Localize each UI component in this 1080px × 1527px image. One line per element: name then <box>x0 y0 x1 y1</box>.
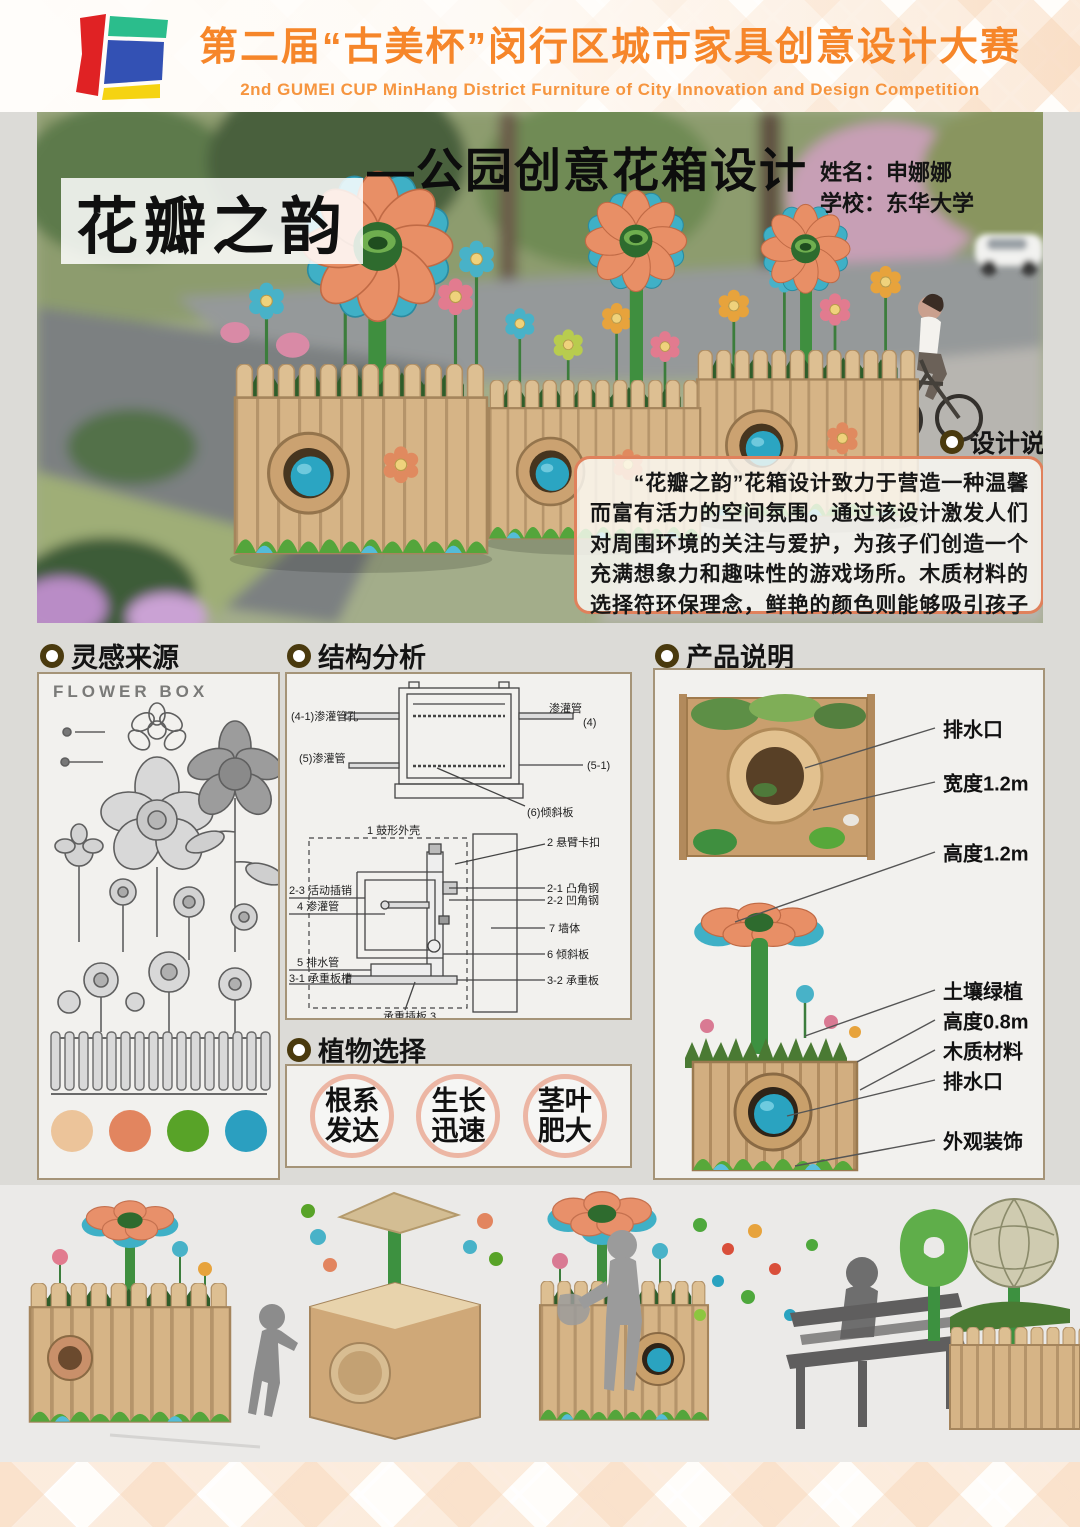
bullet-ring-icon <box>655 644 679 668</box>
project-title: 花瓣之韵 <box>61 178 363 264</box>
svg-text:4 渗灌管: 4 渗灌管 <box>297 899 339 913</box>
svg-text:2-1 凸角钢: 2-1 凸角钢 <box>547 882 599 895</box>
svg-text:(6)倾斜板: (6)倾斜板 <box>527 805 573 819</box>
bullet-ring-icon <box>40 644 64 668</box>
svg-text:6 倾斜板: 6 倾斜板 <box>547 947 589 961</box>
competition-subtitle: 2nd GUMEI CUP MinHang District Furniture… <box>180 80 1040 100</box>
plant-trait-growth: 生长迅速 <box>416 1074 500 1158</box>
product-label-drain-bottom: 排水口 <box>943 1066 1003 1095</box>
palette-swatch-coral <box>109 1110 151 1152</box>
palette-swatch-tan <box>51 1110 93 1152</box>
product-label-decor: 外观装饰 <box>943 1126 1023 1155</box>
design-note-text: “花瓣之韵”花箱设计致力于营造一种温馨而富有活力的空间氛围。通过该设计激发人们对… <box>574 456 1043 614</box>
hero-render: 花瓣之韵 —公园创意花箱设计 姓名：申娜娜 学校：东华大学 设计说明 “花瓣之韵… <box>37 112 1043 623</box>
poster-page: 第二届“古美杯”闵行区城市家具创意设计大赛 2nd GUMEI CUP MinH… <box>0 0 1080 1527</box>
structure-diagrams: (4-1)渗灌管孔 渗灌管 (4) (5)渗灌管 (5-1) (6)倾斜板 <box>287 674 630 1018</box>
usage-scenes-band <box>0 1185 1080 1462</box>
author-info: 姓名：申娜娜 学校：东华大学 <box>820 158 974 220</box>
svg-text:2-3 活动插销: 2-3 活动插销 <box>289 883 352 897</box>
bullet-ring-icon <box>940 430 964 454</box>
product-front-view <box>679 694 935 860</box>
plants-panel: 根系发达 生长迅速 茎叶肥大 <box>285 1064 632 1168</box>
structure-heading: 结构分析 <box>287 636 426 675</box>
color-palette <box>39 1110 278 1152</box>
header-banner: 第二届“古美杯”闵行区城市家具创意设计大赛 2nd GUMEI CUP MinH… <box>0 0 1080 112</box>
product-perspective-view <box>685 903 935 1170</box>
product-label-height: 高度1.2m <box>943 838 1029 867</box>
palette-swatch-teal <box>225 1110 267 1152</box>
svg-text:5 排水管: 5 排水管 <box>297 955 339 969</box>
product-label-height-08: 高度0.8m <box>943 1006 1029 1035</box>
competition-title: 第二届“古美杯”闵行区城市家具创意设计大赛 <box>180 16 1040 72</box>
svg-text:3-2 承重板: 3-2 承重板 <box>547 973 599 987</box>
plant-trait-roots: 根系发达 <box>310 1074 394 1158</box>
author-name: 姓名：申娜娜 <box>820 158 974 189</box>
diamond-pattern <box>0 1462 1080 1527</box>
bullet-ring-icon <box>287 644 311 668</box>
sketch-caption: FLOWER BOX <box>53 682 208 702</box>
sketch-fence <box>51 1032 270 1094</box>
sketch-small-flower <box>125 703 190 754</box>
flower-sketch-illustration <box>39 702 278 1102</box>
svg-text:2-2 凹角钢: 2-2 凹角钢 <box>547 894 599 907</box>
bullet-ring-icon <box>287 1038 311 1062</box>
product-panel: 排水口 宽度1.2m 高度1.2m 土壤绿植 高度0.8m 木质材料 排水口 外… <box>653 668 1045 1180</box>
svg-text:渗灌管: 渗灌管 <box>549 701 582 715</box>
product-label-wood: 木质材料 <box>943 1036 1023 1065</box>
design-note-heading: 设计说明 <box>940 424 1043 460</box>
sketch-bottom-flowers <box>58 952 251 1013</box>
author-school: 学校：东华大学 <box>820 189 974 220</box>
product-label-soil: 土壤绿植 <box>943 976 1023 1005</box>
svg-text:3-1 承重板槽: 3-1 承重板槽 <box>289 971 352 985</box>
usage-scenes-illustration <box>0 1185 1080 1462</box>
svg-text:(5-1): (5-1) <box>587 760 610 772</box>
svg-text:7 墙体: 7 墙体 <box>549 921 580 935</box>
svg-text:(4-1)渗灌管孔: (4-1)渗灌管孔 <box>291 709 358 723</box>
svg-text:承重插板 3: 承重插板 3 <box>383 1009 436 1018</box>
svg-text:1 鼓形外壳: 1 鼓形外壳 <box>367 823 420 837</box>
structure-panel: (4-1)渗灌管孔 渗灌管 (4) (5)渗灌管 (5-1) (6)倾斜板 <box>285 672 632 1020</box>
product-label-width: 宽度1.2m <box>943 768 1029 797</box>
svg-text:(5)渗灌管: (5)渗灌管 <box>299 751 345 765</box>
footer-band <box>0 1462 1080 1527</box>
product-views-illustration <box>655 670 1043 1178</box>
plant-trait-foliage: 茎叶肥大 <box>523 1074 607 1158</box>
inspiration-heading: 灵感来源 <box>40 636 179 675</box>
product-label-drain-top: 排水口 <box>943 714 1003 743</box>
svg-text:(4): (4) <box>583 717 596 729</box>
competition-logo-icon <box>72 14 176 100</box>
palette-swatch-green <box>167 1110 209 1152</box>
svg-text:2 悬臂卡扣: 2 悬臂卡扣 <box>547 835 600 849</box>
work-title: —公园创意花箱设计 <box>367 132 808 201</box>
inspiration-panel: FLOWER BOX <box>37 672 280 1180</box>
